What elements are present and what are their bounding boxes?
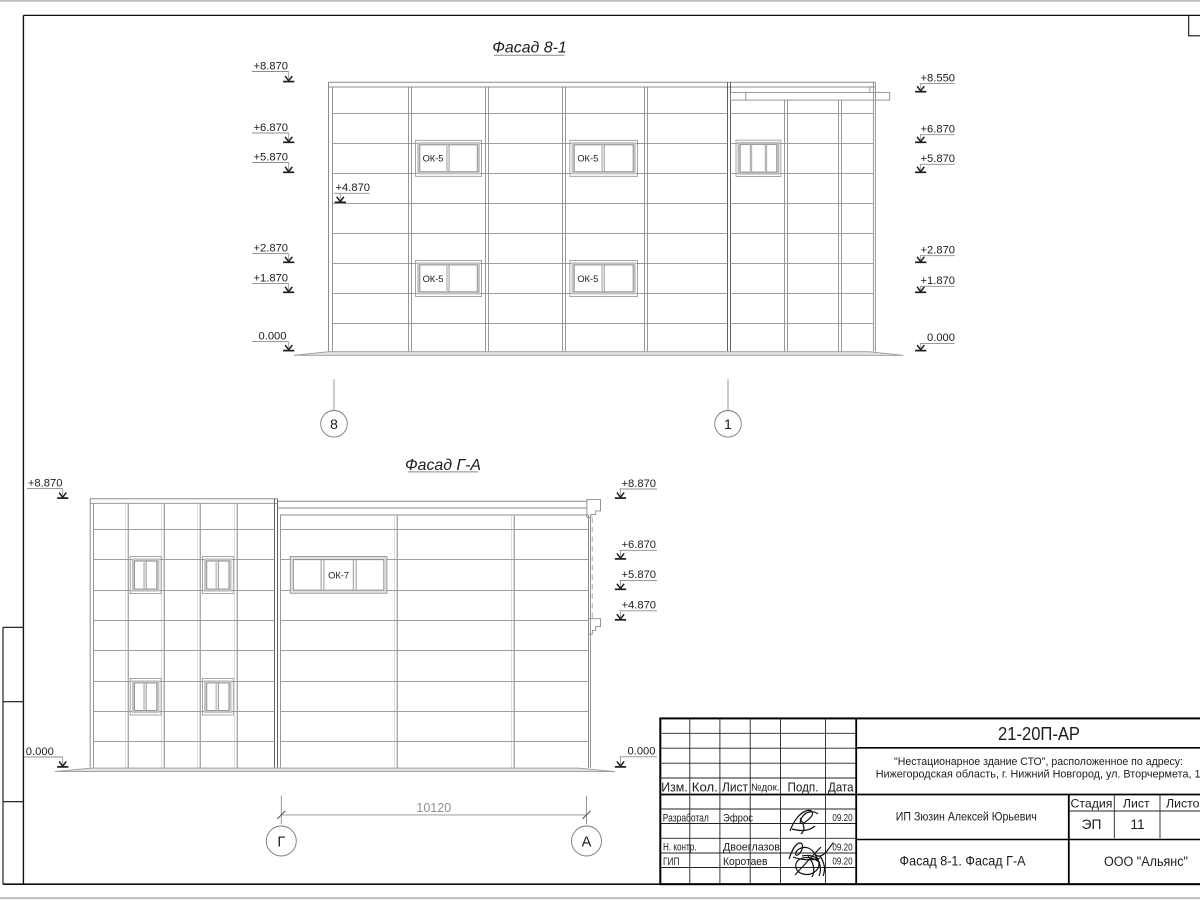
svg-text:ИП Зюзин Алексей Юрьевич: ИП Зюзин Алексей Юрьевич <box>896 810 1037 824</box>
svg-text:ОК-5: ОК-5 <box>423 154 444 164</box>
svg-text:09.20: 09.20 <box>832 813 852 824</box>
svg-text:0.000: 0.000 <box>927 332 955 344</box>
svg-text:09.20: 09.20 <box>832 842 852 853</box>
svg-text:+8.870: +8.870 <box>28 477 63 489</box>
svg-text:Лист: Лист <box>722 780 748 794</box>
svg-text:А: А <box>582 834 592 850</box>
svg-text:+1.870: +1.870 <box>254 272 289 284</box>
svg-text:09.20: 09.20 <box>832 857 852 868</box>
svg-text:8: 8 <box>330 417 338 433</box>
svg-text:Подп.: Подп. <box>788 780 819 794</box>
svg-text:+8.870: +8.870 <box>622 478 657 490</box>
svg-text:Г: Г <box>277 834 285 850</box>
svg-text:+2.870: +2.870 <box>254 242 289 254</box>
svg-text:+5.870: +5.870 <box>921 153 956 165</box>
svg-text:Нижегородская область, г. Нижн: Нижегородская область, г. Нижний Новгоро… <box>876 769 1200 781</box>
svg-text:ЭП: ЭП <box>1082 817 1102 832</box>
svg-text:Н. контр.: Н. контр. <box>663 842 697 854</box>
svg-text:ОК-5: ОК-5 <box>577 154 598 164</box>
svg-text:ООО "Альянс": ООО "Альянс" <box>1104 854 1188 869</box>
svg-text:Разработал: Разработал <box>663 812 709 824</box>
svg-text:Эфрос: Эфрос <box>723 812 753 824</box>
svg-text:ОК-7: ОК-7 <box>328 571 349 581</box>
svg-text:+6.870: +6.870 <box>921 124 956 136</box>
svg-text:Двоеглазов: Двоеглазов <box>723 842 780 854</box>
svg-text:0.000: 0.000 <box>628 746 656 758</box>
svg-text:Листов: Листов <box>1166 797 1200 811</box>
svg-text:+6.870: +6.870 <box>622 539 657 551</box>
svg-text:"Нестационарное здание СТО", р: "Нестационарное здание СТО", расположенн… <box>894 756 1183 768</box>
svg-text:Коротаев: Коротаев <box>723 856 768 868</box>
svg-text:Изм.: Изм. <box>661 780 688 794</box>
svg-text:ОК-5: ОК-5 <box>423 274 444 284</box>
svg-text:+8.550: +8.550 <box>921 72 956 84</box>
svg-text:+5.870: +5.870 <box>622 569 657 581</box>
svg-text:Лист: Лист <box>1123 797 1150 811</box>
svg-text:Дата: Дата <box>828 780 854 794</box>
svg-text:Кол.: Кол. <box>692 780 718 794</box>
svg-text:10120: 10120 <box>416 801 451 815</box>
svg-text:+1.870: +1.870 <box>921 275 956 287</box>
svg-text:+6.870: +6.870 <box>254 122 289 134</box>
svg-text:1: 1 <box>724 417 732 433</box>
svg-text:+4.870: +4.870 <box>622 600 657 612</box>
svg-text:Стадия: Стадия <box>1071 797 1113 811</box>
svg-text:21-20П-АР: 21-20П-АР <box>998 723 1080 744</box>
svg-text:Фасад 8-1. Фасад Г-А: Фасад 8-1. Фасад Г-А <box>900 853 1027 869</box>
svg-text:ОК-5: ОК-5 <box>577 274 598 284</box>
svg-text:11: 11 <box>1130 817 1144 832</box>
svg-text:0.000: 0.000 <box>259 330 287 342</box>
svg-text:Фасад Г-А: Фасад Г-А <box>405 457 481 474</box>
svg-text:+8.870: +8.870 <box>254 60 289 72</box>
svg-text:+4.870: +4.870 <box>336 182 371 194</box>
svg-text:ГИП: ГИП <box>663 856 680 868</box>
svg-text:+5.870: +5.870 <box>254 151 289 163</box>
svg-text:0.000: 0.000 <box>26 746 54 758</box>
svg-text:+2.870: +2.870 <box>921 245 956 257</box>
svg-text:№док.: №док. <box>751 783 780 794</box>
svg-text:Фасад 8-1: Фасад 8-1 <box>492 39 566 56</box>
